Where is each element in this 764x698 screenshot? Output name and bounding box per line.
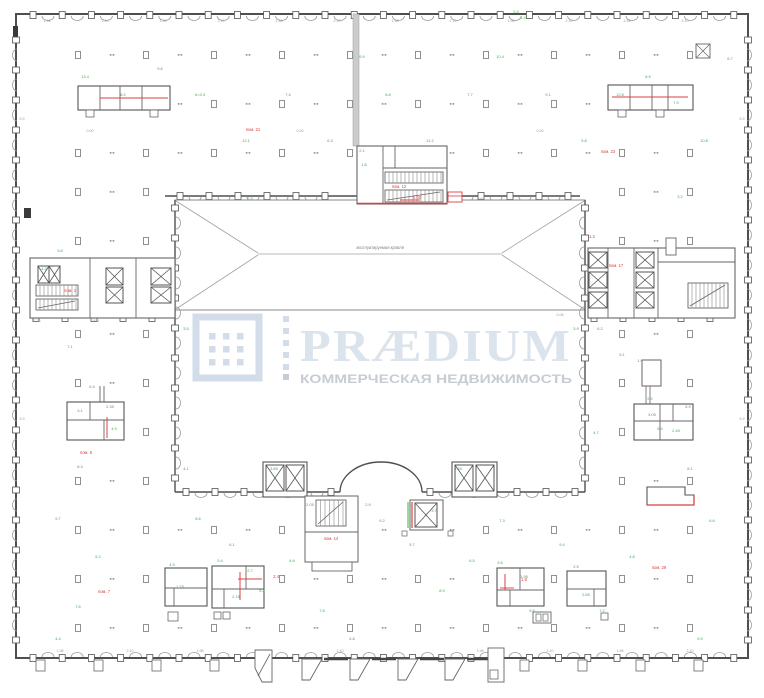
elevator-shaft (589, 292, 607, 308)
column-marker (144, 478, 149, 485)
wall-rect (567, 571, 606, 606)
logo-dots-icon (209, 333, 244, 366)
wc-block-top-right (608, 85, 693, 110)
wall-tick (582, 415, 589, 421)
column-marker (144, 625, 149, 632)
area-label: 2.8 (247, 196, 253, 201)
wall-tick (745, 337, 752, 343)
column-marker (144, 52, 149, 59)
level-mark (317, 152, 319, 154)
level-mark (657, 333, 659, 335)
level-mark (181, 54, 183, 56)
wall-tick (536, 193, 542, 200)
wall-tick (745, 97, 752, 103)
column-marker (620, 625, 625, 632)
column-marker (76, 331, 81, 338)
wall-tick (234, 12, 240, 19)
column-marker (144, 238, 149, 245)
level-mark (246, 627, 248, 629)
room-label: пом. 23 (601, 149, 616, 154)
area-label: 3.8 (57, 248, 63, 253)
wall-tick (118, 655, 124, 662)
dim-label: 2.10 (218, 19, 225, 23)
level-mark (654, 627, 656, 629)
wall-tick (745, 187, 752, 193)
area-label: 3.1 (77, 408, 83, 413)
wall-rect (385, 172, 443, 183)
level-mark (518, 103, 520, 105)
column-marker (620, 576, 625, 583)
room-label: 2.4 (273, 574, 279, 579)
level-mark (181, 627, 183, 629)
area-label: 4.1 (183, 466, 189, 471)
level-mark (113, 54, 115, 56)
wall-tick (745, 487, 752, 493)
level-mark (314, 152, 316, 154)
wall-tick (745, 427, 752, 433)
level-mark (586, 103, 588, 105)
wall-tick (293, 655, 299, 662)
level-mark (110, 480, 112, 482)
wc-block-left (67, 386, 124, 440)
column-marker (144, 527, 149, 534)
level-mark (317, 578, 319, 580)
niche-arc (176, 337, 181, 349)
wall-tick (293, 193, 299, 200)
porch-foot (636, 660, 645, 671)
column-marker (280, 527, 285, 534)
dim-label: 2.10 (547, 649, 554, 653)
column-marker (144, 331, 149, 338)
area-label: 5.7 (409, 542, 415, 547)
wall-tick (585, 12, 591, 19)
porch-foot (694, 660, 703, 671)
level-mark (589, 103, 591, 105)
wall-tick (13, 247, 20, 253)
wall-tick (13, 517, 20, 523)
area-label: 1.2 (520, 15, 526, 20)
niche-arc (655, 16, 667, 21)
column-marker (552, 52, 557, 59)
column-marker (552, 527, 557, 534)
wall-tick (172, 235, 179, 241)
niche-arc (580, 427, 584, 439)
niche-arc (188, 653, 200, 658)
level-mark (314, 578, 316, 580)
niche-arc (176, 427, 181, 439)
level-mark (586, 627, 588, 629)
area-label: 5.1 (619, 352, 625, 357)
area-label: 2.2 (647, 396, 653, 401)
area-label: 10.8 (700, 138, 709, 143)
elevator-shaft (636, 252, 654, 268)
level-mark (110, 578, 112, 580)
column-marker (688, 380, 693, 387)
level-mark (178, 54, 180, 56)
fixture (214, 612, 221, 619)
wall-rect (67, 402, 124, 440)
wc-block-bl-2 (212, 566, 264, 608)
level-mark (450, 103, 452, 105)
level-mark (178, 152, 180, 154)
wall-tick (13, 637, 20, 643)
column-marker (280, 150, 285, 157)
area-label: 6.9 (685, 404, 691, 409)
level-mark (181, 529, 183, 531)
niche-arc (363, 16, 375, 21)
wall-tick (745, 247, 752, 253)
elevator-shaft (151, 287, 171, 303)
entrance-canopy (302, 659, 322, 680)
level-mark (246, 103, 248, 105)
wall-tick (702, 12, 708, 19)
column-marker (76, 150, 81, 157)
niche-arc (130, 653, 142, 658)
wall-tick (147, 12, 153, 19)
area-label: 2.4 (513, 9, 519, 14)
level-mark (657, 191, 659, 193)
wall-tick (172, 325, 179, 331)
dim-label: 5.9 (740, 417, 745, 421)
niche-arc (159, 653, 171, 658)
niche-arc (176, 367, 181, 379)
wall-tick (59, 655, 65, 662)
column-marker (76, 576, 81, 583)
level-mark (654, 54, 656, 56)
level-mark (113, 382, 115, 384)
column-marker (280, 576, 285, 583)
entrance-canopy (398, 659, 418, 680)
level-mark (249, 529, 251, 531)
wall-tick (13, 487, 20, 493)
duct-shaft (642, 360, 661, 386)
column-marker (280, 625, 285, 632)
wall-tick (172, 415, 179, 421)
column-marker (620, 189, 625, 196)
wall-tick (206, 193, 212, 200)
area-label: 2.1 (359, 148, 365, 153)
column-marker (620, 527, 625, 534)
area-label: 3.2 (677, 194, 683, 199)
area-label: 6.4 (89, 384, 95, 389)
brand-subtitle: КОММЕРЧЕСКАЯ НЕДВИЖИМОСТЬ (300, 374, 572, 386)
level-mark (110, 54, 112, 56)
area-label: 1.75 (176, 584, 185, 589)
column-marker (280, 101, 285, 108)
level-mark (317, 627, 319, 629)
wall-tick (643, 12, 649, 19)
area-label: 5.2 (95, 554, 101, 559)
wall-tick (13, 457, 20, 463)
wall-tick (745, 637, 752, 643)
level-mark (657, 578, 659, 580)
fixture (223, 612, 230, 619)
area-label: 12.6 (616, 92, 625, 97)
wall-tick (13, 337, 20, 343)
level-mark (110, 529, 112, 531)
wall-tick (745, 577, 752, 583)
wall-tick (328, 489, 334, 496)
column-marker (212, 52, 217, 59)
area-label: 2.15 (232, 594, 241, 599)
wall-tick (672, 12, 678, 19)
area-label: 7.3 (499, 518, 505, 523)
column-marker (620, 429, 625, 436)
level-mark (589, 152, 591, 154)
level-mark (385, 103, 387, 105)
area-label: 4.6 (289, 558, 295, 563)
entrance-canopy (350, 659, 370, 680)
level-mark (654, 152, 656, 154)
room-label: пом. 17 (609, 263, 624, 268)
niche-arc (497, 493, 509, 498)
area-label: 11.2 (426, 138, 434, 143)
level-mark (654, 529, 656, 531)
dim-label: 5.9 (20, 117, 25, 121)
dim-label: 1.98 (160, 19, 167, 23)
wall-tick (731, 12, 737, 19)
level-mark (113, 627, 115, 629)
wall-tick (13, 397, 20, 403)
level-mark (246, 54, 248, 56)
wall-tick (59, 12, 65, 19)
level-mark (113, 191, 115, 193)
area-label: 2.65 (582, 592, 591, 597)
level-mark (385, 529, 387, 531)
niche-arc (422, 16, 434, 21)
level-mark (589, 627, 591, 629)
column-marker (552, 101, 557, 108)
level-mark (450, 529, 452, 531)
area-label: 13.4 (81, 74, 90, 79)
room-label: пом. 12 (392, 184, 407, 189)
level-mark (657, 480, 659, 482)
wall-tick (13, 37, 20, 43)
wall-tick (582, 235, 589, 241)
area-label: 5.9 (697, 636, 703, 641)
area-label: 8.1 (687, 466, 693, 471)
column-marker (688, 576, 693, 583)
column-marker (484, 576, 489, 583)
dim-label: 1.98 (624, 19, 631, 23)
wc-block-br-2 (567, 571, 606, 606)
column-marker (552, 150, 557, 157)
niche-arc (130, 16, 142, 21)
wall-tick (410, 12, 416, 19)
niche-arc (246, 16, 258, 21)
niche-arc (363, 653, 375, 658)
wall-rect (543, 614, 548, 621)
room-label: пом. 1 (64, 288, 77, 293)
column-marker (348, 101, 353, 108)
column-marker (688, 478, 693, 485)
dim-label: 0.00 (537, 129, 544, 133)
area-label: 4.2 (41, 266, 47, 271)
area-label: 6.7 (727, 56, 733, 61)
column-marker (620, 52, 625, 59)
area-label: 10.4 (496, 54, 505, 59)
niche-arc (597, 16, 609, 21)
level-mark (178, 529, 180, 531)
marked-room (647, 487, 694, 505)
niche-arc (714, 653, 726, 658)
niche-arc (188, 16, 200, 21)
wall-tick (172, 205, 179, 211)
niche-arc (684, 653, 696, 658)
porch-foot (520, 660, 529, 671)
niche-arc (480, 16, 492, 21)
level-mark (113, 578, 115, 580)
dim-label: 2.10 (102, 19, 109, 23)
niche-arc (71, 653, 83, 658)
wall-tick (745, 607, 752, 613)
niche-arc (422, 653, 434, 658)
wall-tick (582, 385, 589, 391)
dim-label: 5.9 (20, 417, 25, 421)
wall-tick (582, 325, 589, 331)
column-marker (348, 625, 353, 632)
dim-label: 1.98 (44, 19, 51, 23)
level-mark (113, 529, 115, 531)
wall-tick (439, 12, 445, 19)
level-mark (178, 103, 180, 105)
level-mark (450, 627, 452, 629)
column-marker (484, 101, 489, 108)
area-label: 8.2 (120, 92, 126, 97)
niche-arc (580, 337, 584, 349)
level-mark (586, 529, 588, 531)
column-marker (76, 478, 81, 485)
level-mark (317, 103, 319, 105)
area-label: 9.7 (55, 516, 61, 521)
column-marker (144, 576, 149, 583)
column-marker (76, 380, 81, 387)
level-mark (314, 103, 316, 105)
area-label: 6.5 (469, 558, 475, 563)
wall-tick (30, 655, 36, 662)
dim-label: 2.10 (450, 19, 457, 23)
area-label: h=3.3 (195, 92, 206, 97)
level-mark (518, 529, 520, 531)
level-mark (246, 152, 248, 154)
wall-tick (172, 475, 179, 481)
level-mark (657, 529, 659, 531)
level-mark (521, 152, 523, 154)
level-mark (453, 152, 455, 154)
level-mark (654, 480, 656, 482)
dim-label: 1.98 (57, 649, 64, 653)
column-marker (552, 625, 557, 632)
column-marker (688, 150, 693, 157)
wall-tick (745, 397, 752, 403)
wall-tick (582, 355, 589, 361)
niche-arc (217, 653, 229, 658)
niche-arc (305, 653, 317, 658)
niche-arc (538, 16, 550, 21)
wall-tick (556, 655, 562, 662)
dim-label: 1.98 (477, 649, 484, 653)
wall-tick (556, 12, 562, 19)
column-marker (144, 150, 149, 157)
column-marker (402, 531, 407, 536)
area-label: 3.4 (217, 558, 223, 563)
column-marker (416, 52, 421, 59)
area-label: 6.6 (709, 518, 715, 523)
column-marker (688, 189, 693, 196)
level-mark (249, 54, 251, 56)
level-mark (113, 240, 115, 242)
elevator-shaft (589, 252, 607, 268)
column-marker (484, 150, 489, 157)
dim-label: 0.00 (297, 129, 304, 133)
column-marker (484, 527, 489, 534)
wall-tick (241, 489, 247, 496)
column-marker (212, 527, 217, 534)
wall-tick (264, 193, 270, 200)
wall-tick (745, 517, 752, 523)
column-marker (484, 52, 489, 59)
room-label: 1.8 (521, 577, 527, 582)
column-marker (688, 527, 693, 534)
area-label: 2.6 (477, 196, 483, 201)
wall-tick (614, 655, 620, 662)
room-label: пом. 29 (652, 565, 667, 570)
area-label: 7.7 (467, 92, 473, 97)
area-label: 7.6 (75, 604, 81, 609)
wall-tick (13, 187, 20, 193)
dim-label: 2.08 (557, 313, 564, 317)
wall-rect (86, 110, 94, 117)
dim-label: 2.10 (334, 19, 341, 23)
level-mark (385, 627, 387, 629)
column-marker (144, 189, 149, 196)
column-marker (76, 189, 81, 196)
dim-label: 2.10 (337, 649, 344, 653)
bay-arc (340, 462, 422, 492)
wall-rect (634, 404, 693, 440)
column-marker (212, 101, 217, 108)
area-label: 4.3 (169, 562, 175, 567)
level-mark (450, 54, 452, 56)
column-marker (144, 429, 149, 436)
level-mark (450, 578, 452, 580)
level-mark (654, 240, 656, 242)
dim-label: 1.98 (392, 19, 399, 23)
area-label: 12.1 (242, 138, 251, 143)
niche-arc (224, 493, 236, 498)
area-label: 2.45 (672, 428, 681, 433)
column-marker (212, 625, 217, 632)
dim-label: 2.10 (682, 19, 689, 23)
wall-tick (468, 12, 474, 19)
level-mark (518, 627, 520, 629)
area-label: 7.8 (319, 608, 325, 613)
level-mark (521, 103, 523, 105)
area-label: 3.6 (497, 560, 503, 565)
elevator-shaft (636, 292, 654, 308)
wall-tick (427, 489, 433, 496)
area-label: 3.85 (270, 466, 279, 471)
elevator-shaft (49, 266, 60, 283)
level-mark (110, 191, 112, 193)
area-label: 8.8 (385, 92, 391, 97)
niche-arc (42, 653, 54, 658)
column-marker (416, 576, 421, 583)
wall-rect (150, 110, 158, 117)
room-label: пом. 5 (80, 450, 93, 455)
level-mark (521, 54, 523, 56)
wall-tick (745, 307, 752, 313)
